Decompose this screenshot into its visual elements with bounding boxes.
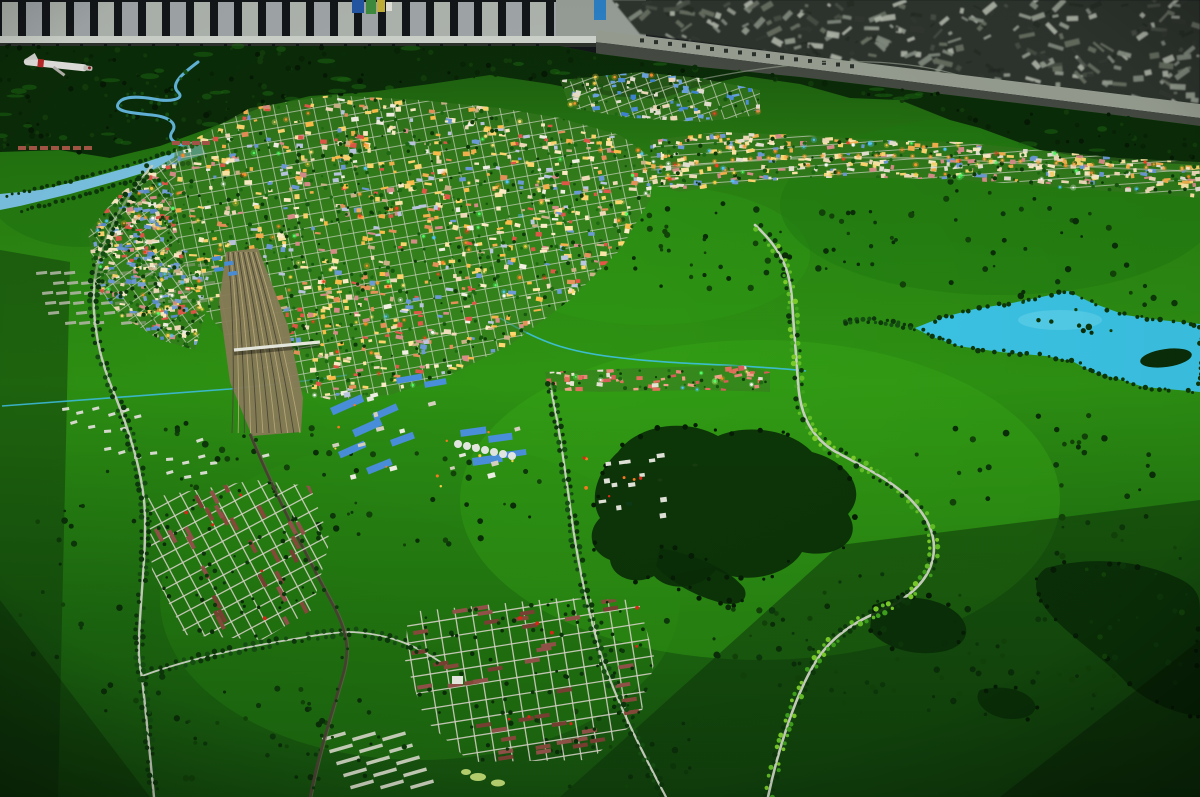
photo-vignette — [0, 0, 1200, 797]
exhibit-photo — [0, 0, 1200, 797]
model-photo-svg — [0, 0, 1200, 797]
